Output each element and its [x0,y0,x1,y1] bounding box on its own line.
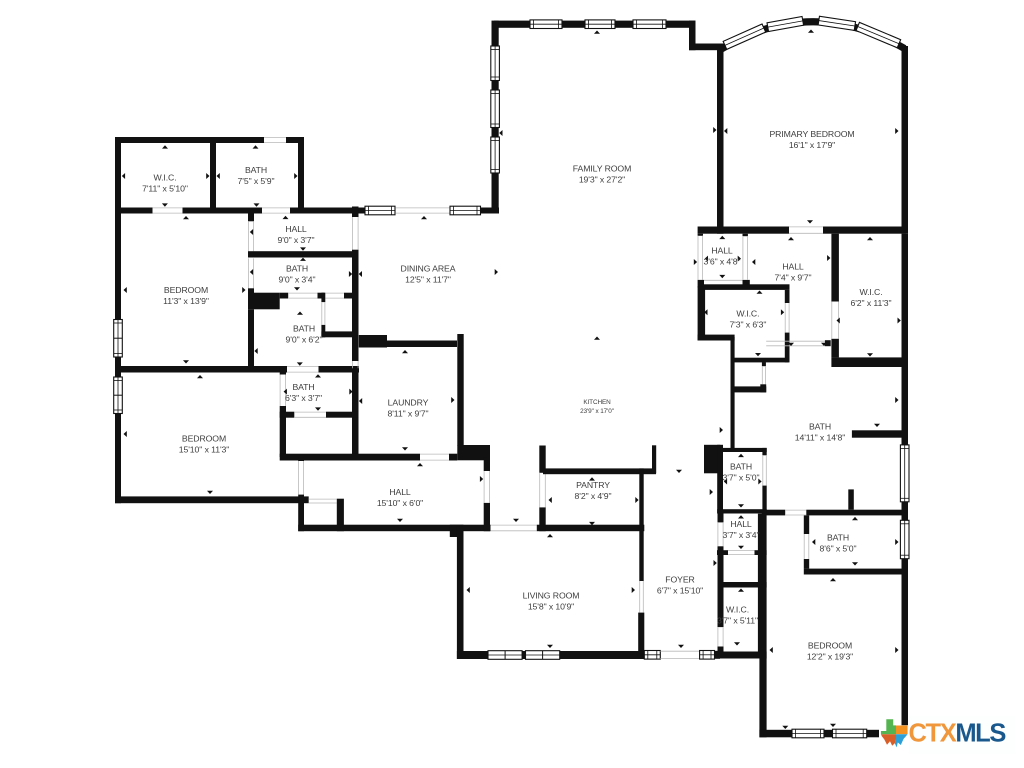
svg-text:8'11" x 9'7": 8'11" x 9'7" [388,409,429,419]
svg-text:W.I.C.: W.I.C. [736,309,759,319]
svg-text:9'0" x 6'2": 9'0" x 6'2" [286,335,323,345]
svg-text:W.I.C.: W.I.C. [726,605,749,615]
svg-text:12'5" x 11'7": 12'5" x 11'7" [405,275,451,285]
svg-text:PRIMARY BEDROOM: PRIMARY BEDROOM [769,129,854,139]
svg-text:7'11" x 5'10": 7'11" x 5'10" [142,184,188,194]
svg-text:LAUNDRY: LAUNDRY [388,398,429,408]
svg-text:BATH: BATH [245,165,267,175]
svg-text:19'3" x 27'2": 19'3" x 27'2" [579,175,625,185]
svg-text:BATH: BATH [827,533,849,543]
svg-text:3'7" x 3'4": 3'7" x 3'4" [723,530,760,540]
svg-text:3'7" x 5'11": 3'7" x 5'11" [717,616,758,626]
svg-text:W.I.C.: W.I.C. [153,173,176,183]
svg-text:BATH: BATH [293,324,315,334]
svg-text:PANTRY: PANTRY [576,480,610,490]
svg-text:8'2" x 4'9": 8'2" x 4'9" [575,491,612,501]
svg-text:3'7" x 5'0": 3'7" x 5'0" [723,473,760,483]
svg-text:LIVING ROOM: LIVING ROOM [523,591,580,601]
svg-text:BEDROOM: BEDROOM [164,285,208,295]
svg-text:7'4" x 9'7": 7'4" x 9'7" [775,273,812,283]
svg-text:FAMILY ROOM: FAMILY ROOM [573,164,631,174]
svg-text:KITCHEN: KITCHEN [583,399,611,406]
svg-text:6'2" x 11'3": 6'2" x 11'3" [851,298,892,308]
svg-text:HALL: HALL [285,224,307,234]
svg-text:6'3" x 3'7": 6'3" x 3'7" [285,393,322,403]
svg-text:BEDROOM: BEDROOM [808,641,852,651]
svg-text:HALL: HALL [389,487,411,497]
svg-text:7'5" x 5'9": 7'5" x 5'9" [238,176,275,186]
svg-text:3'6" x 4'8": 3'6" x 4'8" [704,257,741,267]
svg-text:12'2" x 19'3": 12'2" x 19'3" [807,652,853,662]
svg-text:HALL: HALL [711,246,733,256]
svg-text:HALL: HALL [730,519,752,529]
svg-text:15'10" x 6'0": 15'10" x 6'0" [377,498,423,508]
svg-text:FOYER: FOYER [665,575,694,585]
svg-text:9'0" x 3'4": 9'0" x 3'4" [279,275,316,285]
svg-text:15'8" x 10'9": 15'8" x 10'9" [528,602,574,612]
svg-text:9'0" x 3'7": 9'0" x 3'7" [278,235,315,245]
svg-text:BATH: BATH [730,462,752,472]
svg-text:BEDROOM: BEDROOM [182,434,226,444]
svg-text:BATH: BATH [286,264,308,274]
svg-text:8'6" x 5'0": 8'6" x 5'0" [820,544,857,554]
svg-text:16'1" x 17'9": 16'1" x 17'9" [789,140,835,150]
svg-text:7'3" x 6'3": 7'3" x 6'3" [729,320,766,330]
svg-text:14'11" x 14'8": 14'11" x 14'8" [795,433,845,443]
svg-text:BATH: BATH [292,382,314,392]
svg-text:11'3" x 13'9": 11'3" x 13'9" [163,296,209,306]
svg-text:15'10" x 11'3": 15'10" x 11'3" [179,445,229,455]
svg-text:DINING AREA: DINING AREA [401,264,456,274]
svg-text:6'7" x 15'10": 6'7" x 15'10" [657,586,703,596]
svg-text:W.I.C.: W.I.C. [859,287,882,297]
svg-text:CTXMLS: CTXMLS [909,720,1007,748]
svg-text:HALL: HALL [782,262,804,272]
svg-text:BATH: BATH [809,422,831,432]
svg-text:23'9" x 17'0": 23'9" x 17'0" [580,408,614,415]
